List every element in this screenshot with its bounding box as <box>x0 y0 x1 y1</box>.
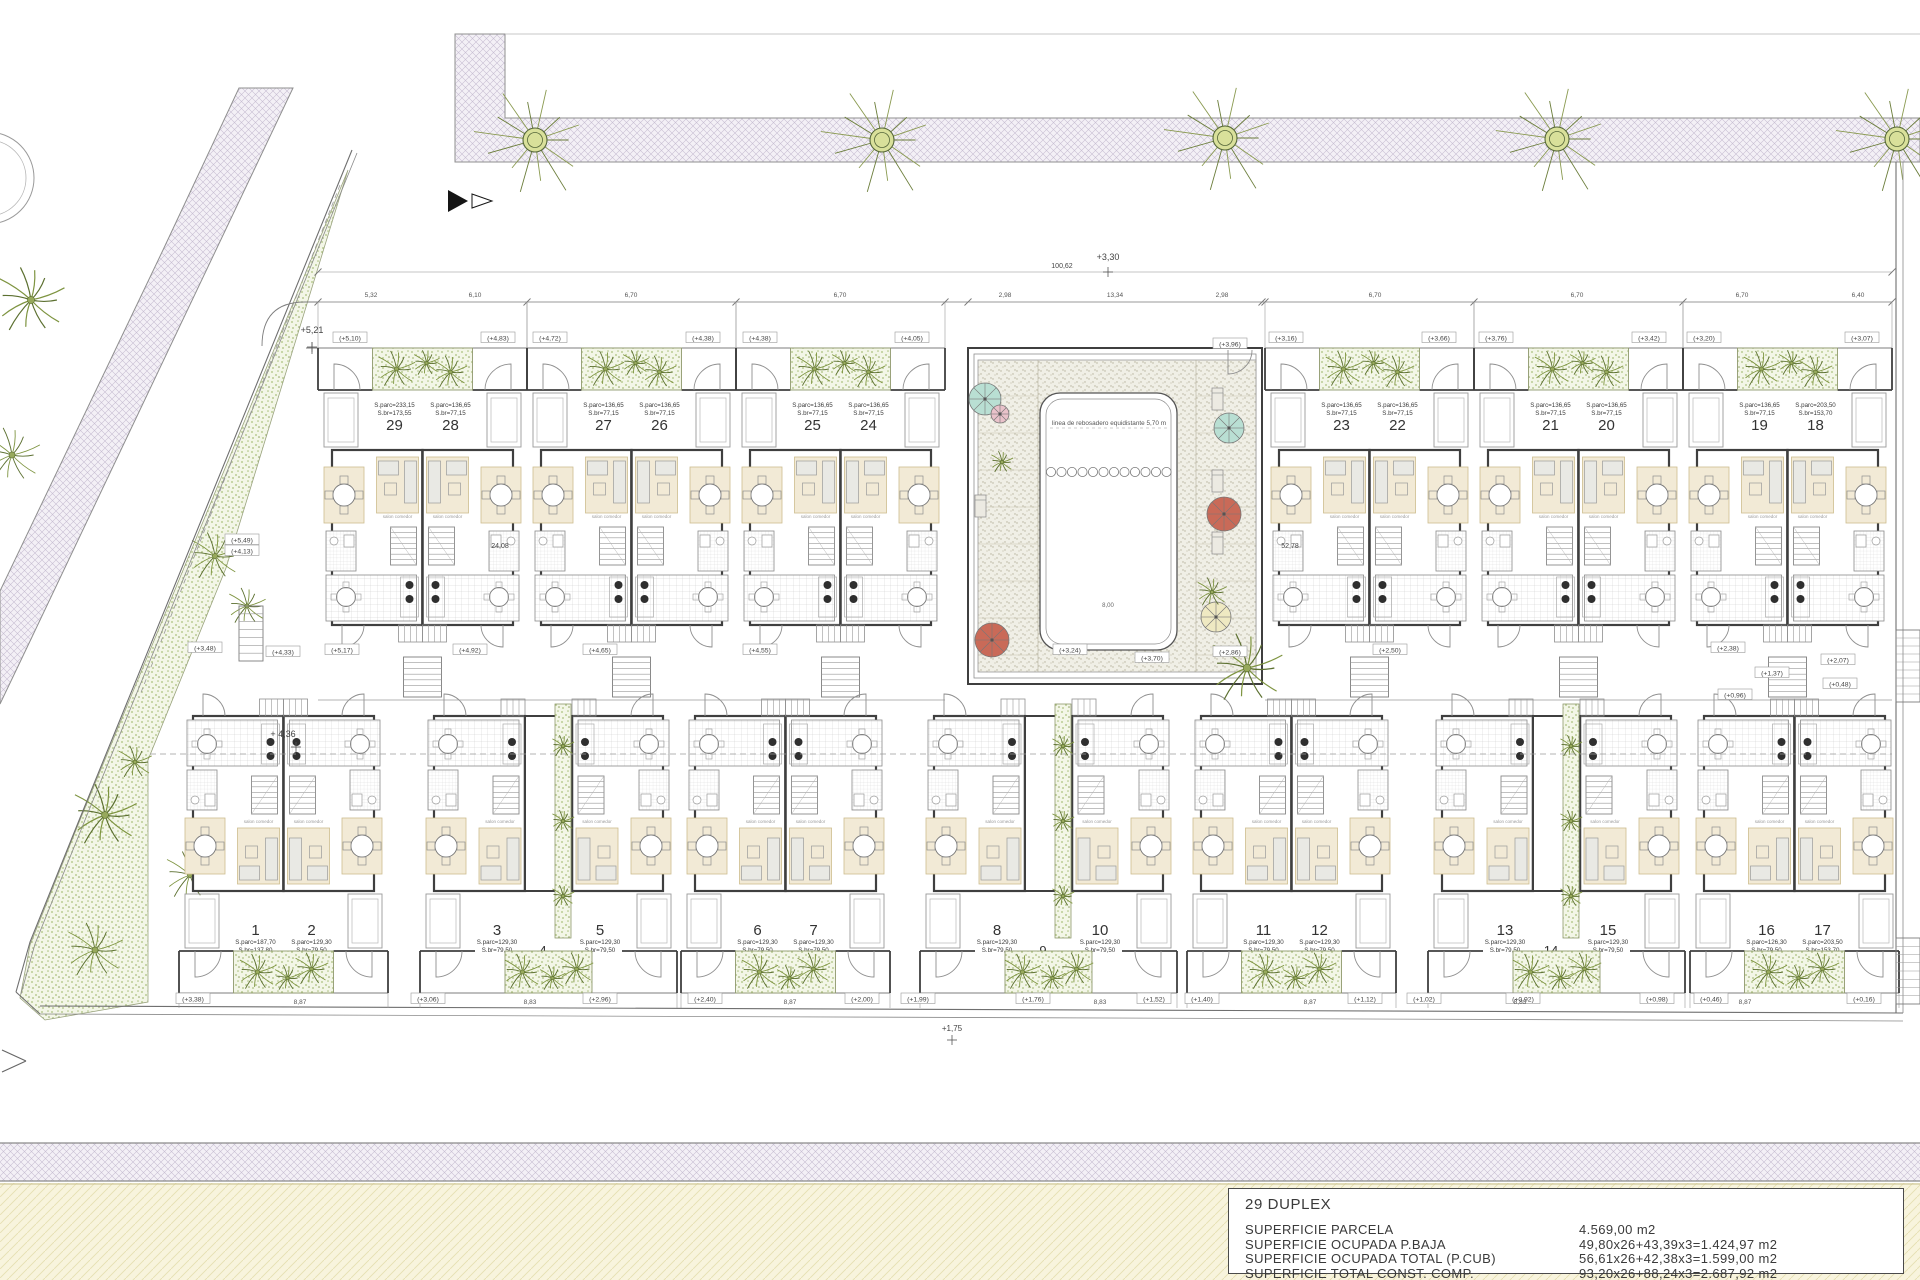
svg-text:(+3,66): (+3,66) <box>1428 336 1450 343</box>
svg-text:salon comedor: salon comedor <box>1252 819 1282 824</box>
svg-text:(+4,13): (+4,13) <box>231 549 253 556</box>
svg-text:(+4,72): (+4,72) <box>539 336 561 343</box>
svg-text:(+0,96): (+0,96) <box>1724 693 1746 700</box>
svg-text:S.br=77,15: S.br=77,15 <box>1591 410 1622 417</box>
svg-text:S.parc=129,30: S.parc=129,30 <box>477 939 518 946</box>
svg-text:S.parc=203,50: S.parc=203,50 <box>1795 402 1836 409</box>
svg-text:16: 16 <box>1758 922 1775 939</box>
svg-text:(+3,96): (+3,96) <box>1219 342 1241 349</box>
svg-text:salon comedor: salon comedor <box>1302 819 1332 824</box>
svg-text:(+1,52): (+1,52) <box>1143 997 1165 1004</box>
porch-planter <box>1513 951 1601 993</box>
svg-text:8,87: 8,87 <box>784 999 797 1006</box>
svg-text:S.br=77,15: S.br=77,15 <box>1744 410 1775 417</box>
svg-text:8,83: 8,83 <box>1514 999 1527 1006</box>
svg-text:8,87: 8,87 <box>294 999 307 1006</box>
parasol <box>1214 413 1244 443</box>
svg-text:(+2,86): (+2,86) <box>1219 650 1241 657</box>
svg-text:+ 4,36: + 4,36 <box>270 729 295 739</box>
svg-text:(+3,38): (+3,38) <box>182 997 204 1004</box>
porch-planter <box>1738 348 1838 390</box>
svg-text:S.parc=129,30: S.parc=129,30 <box>1588 939 1629 946</box>
svg-text:15: 15 <box>1600 922 1617 939</box>
svg-text:2,98: 2,98 <box>999 292 1012 299</box>
svg-text:11: 11 <box>1256 922 1272 939</box>
svg-text:salon comedor: salon comedor <box>1805 819 1835 824</box>
svg-text:salon comedor: salon comedor <box>582 819 612 824</box>
svg-text:S.br=77,15: S.br=77,15 <box>435 410 466 417</box>
svg-text:6,70: 6,70 <box>625 292 638 299</box>
svg-text:S.br=77,15: S.br=77,15 <box>853 410 884 417</box>
svg-text:(+3,70): (+3,70) <box>1141 656 1163 663</box>
svg-text:salon comedor: salon comedor <box>485 819 515 824</box>
parasol <box>975 623 1009 657</box>
svg-text:(+0,46): (+0,46) <box>1700 997 1722 1004</box>
svg-text:S.parc=136,65: S.parc=136,65 <box>1586 402 1627 409</box>
svg-text:(+0,48): (+0,48) <box>1829 682 1851 689</box>
svg-text:24,08: 24,08 <box>491 543 509 550</box>
svg-text:28: 28 <box>442 417 459 434</box>
title-block-row: SUPERFICIE TOTAL CONST. COMP. 93,20x26+8… <box>1245 1267 1887 1280</box>
svg-text:52,78: 52,78 <box>1281 543 1299 550</box>
title-block-row: SUPERFICIE OCUPADA P.BAJA 49,80x26+43,39… <box>1245 1238 1887 1253</box>
svg-text:19: 19 <box>1751 417 1768 434</box>
svg-text:6,70: 6,70 <box>1571 292 1584 299</box>
svg-text:(+4,05): (+4,05) <box>901 336 923 343</box>
svg-text:S.parc=129,30: S.parc=129,30 <box>1080 939 1121 946</box>
svg-text:(+1,12): (+1,12) <box>1354 997 1376 1004</box>
svg-text:100,62: 100,62 <box>1051 263 1073 270</box>
porch-planter <box>1242 951 1342 993</box>
svg-text:24: 24 <box>860 417 877 434</box>
svg-text:(+1,40): (+1,40) <box>1191 997 1213 1004</box>
svg-text:S.br=153,70: S.br=153,70 <box>1799 410 1833 417</box>
svg-text:(+2,38): (+2,38) <box>1717 646 1739 653</box>
svg-text:salon comedor: salon comedor <box>592 514 622 519</box>
svg-text:salon comedor: salon comedor <box>1590 819 1620 824</box>
svg-text:salon comedor: salon comedor <box>1330 514 1360 519</box>
porch-planter <box>373 348 473 390</box>
svg-text:salon comedor: salon comedor <box>1380 514 1410 519</box>
svg-text:S.parc=136,65: S.parc=136,65 <box>1321 402 1362 409</box>
svg-text:23: 23 <box>1333 417 1350 434</box>
sun-lounger <box>1212 388 1223 410</box>
sun-lounger <box>1212 532 1223 554</box>
background <box>0 0 1920 1280</box>
svg-text:S.parc=129,30: S.parc=129,30 <box>1243 939 1284 946</box>
svg-text:S.parc=129,30: S.parc=129,30 <box>1485 939 1526 946</box>
svg-text:12: 12 <box>1311 922 1328 939</box>
svg-text:8: 8 <box>993 922 1001 939</box>
svg-text:1: 1 <box>251 922 259 939</box>
title-block-title: 29 DUPLEX <box>1245 1196 1887 1213</box>
svg-text:S.parc=233,15: S.parc=233,15 <box>374 402 415 409</box>
svg-text:salon comedor: salon comedor <box>294 819 324 824</box>
svg-text:S.parc=136,65: S.parc=136,65 <box>792 402 833 409</box>
svg-text:salon comedor: salon comedor <box>801 514 831 519</box>
svg-text:salon comedor: salon comedor <box>1493 819 1523 824</box>
svg-text:(+1,76): (+1,76) <box>1022 997 1044 1004</box>
svg-text:(+0,16): (+0,16) <box>1853 997 1875 1004</box>
svg-text:S.parc=129,30: S.parc=129,30 <box>1299 939 1340 946</box>
svg-text:26: 26 <box>651 417 668 434</box>
svg-text:S.br=77,15: S.br=77,15 <box>1382 410 1413 417</box>
svg-text:S.parc=136,65: S.parc=136,65 <box>848 402 889 409</box>
title-block-row: SUPERFICIE OCUPADA TOTAL (P.CUB) 56,61x2… <box>1245 1252 1887 1267</box>
svg-text:(+3,48): (+3,48) <box>194 646 216 653</box>
svg-text:salon comedor: salon comedor <box>985 819 1015 824</box>
svg-text:5,32: 5,32 <box>365 292 378 299</box>
svg-text:S.parc=136,65: S.parc=136,65 <box>1739 402 1780 409</box>
svg-text:(+0,98): (+0,98) <box>1646 997 1668 1004</box>
svg-text:(+3,16): (+3,16) <box>1275 336 1297 343</box>
svg-text:S.parc=136,65: S.parc=136,65 <box>430 402 471 409</box>
svg-text:2: 2 <box>307 922 315 939</box>
porch-planter <box>1745 951 1845 993</box>
svg-text:(+3,07): (+3,07) <box>1851 336 1873 343</box>
title-block-row: SUPERFICIE PARCELA 4.569,00 m2 <box>1245 1223 1887 1238</box>
svg-text:2,98: 2,98 <box>1216 292 1229 299</box>
svg-text:salon comedor: salon comedor <box>1798 514 1828 519</box>
svg-text:(+1,99): (+1,99) <box>907 997 929 1004</box>
svg-text:21: 21 <box>1542 417 1559 434</box>
svg-text:8,87: 8,87 <box>1304 999 1317 1006</box>
svg-text:salon comedor: salon comedor <box>1589 514 1619 519</box>
svg-text:(+2,40): (+2,40) <box>694 997 716 1004</box>
site-plan-drawing: salon comedorS.parc=233,15S.br=173,5529s… <box>0 0 1920 1280</box>
svg-text:salon comedor: salon comedor <box>1539 514 1569 519</box>
svg-text:S.parc=136,65: S.parc=136,65 <box>639 402 680 409</box>
svg-text:25: 25 <box>804 417 821 434</box>
svg-text:(+4,33): (+4,33) <box>272 650 294 657</box>
site-plan-page: salon comedorS.parc=233,15S.br=173,5529s… <box>0 0 1920 1280</box>
svg-text:+1,75: +1,75 <box>942 1024 963 1033</box>
svg-text:6: 6 <box>753 922 761 939</box>
svg-text:salon comedor: salon comedor <box>746 819 776 824</box>
svg-text:+5,21: +5,21 <box>301 325 324 335</box>
porch-planter <box>1005 951 1093 993</box>
svg-text:salon comedor: salon comedor <box>244 819 274 824</box>
title-block: 29 DUPLEX SUPERFICIE PARCELA 4.569,00 m2… <box>1228 1188 1904 1274</box>
parasol <box>1207 497 1241 531</box>
svg-text:salon comedor: salon comedor <box>383 514 413 519</box>
svg-text:22: 22 <box>1389 417 1406 434</box>
svg-text:(+4,65): (+4,65) <box>589 648 611 655</box>
svg-text:S.parc=187,70: S.parc=187,70 <box>235 939 276 946</box>
svg-text:salon comedor: salon comedor <box>433 514 463 519</box>
svg-text:salon comedor: salon comedor <box>642 514 672 519</box>
svg-text:S.parc=129,30: S.parc=129,30 <box>977 939 1018 946</box>
svg-text:(+5,17): (+5,17) <box>331 648 353 655</box>
svg-text:13,34: 13,34 <box>1107 292 1124 299</box>
svg-text:S.parc=136,65: S.parc=136,65 <box>1530 402 1571 409</box>
svg-text:(+3,20): (+3,20) <box>1693 336 1715 343</box>
svg-text:linea de rebosadero equidistan: linea de rebosadero equidistante 5,70 m <box>1052 420 1166 427</box>
svg-text:S.parc=136,65: S.parc=136,65 <box>1377 402 1418 409</box>
svg-text:(+4,55): (+4,55) <box>749 648 771 655</box>
svg-text:salon comedor: salon comedor <box>1748 514 1778 519</box>
svg-text:S.br=173,55: S.br=173,55 <box>378 410 412 417</box>
svg-text:S.parc=129,30: S.parc=129,30 <box>291 939 332 946</box>
svg-text:(+4,83): (+4,83) <box>487 336 509 343</box>
svg-text:+3,30: +3,30 <box>1097 252 1120 262</box>
svg-text:5: 5 <box>596 922 604 939</box>
porch-planter <box>1320 348 1420 390</box>
svg-text:7: 7 <box>809 922 817 939</box>
svg-text:salon comedor: salon comedor <box>796 819 826 824</box>
svg-text:S.br=77,15: S.br=77,15 <box>797 410 828 417</box>
svg-text:(+4,92): (+4,92) <box>459 648 481 655</box>
svg-text:8,83: 8,83 <box>1094 999 1107 1006</box>
svg-text:(+1,37): (+1,37) <box>1761 671 1783 678</box>
svg-text:8,00: 8,00 <box>1102 603 1114 609</box>
svg-text:(+2,50): (+2,50) <box>1379 648 1401 655</box>
porch-planter <box>1529 348 1629 390</box>
svg-text:(+3,06): (+3,06) <box>417 997 439 1004</box>
porch-planter <box>505 951 593 993</box>
svg-text:S.parc=136,65: S.parc=136,65 <box>583 402 624 409</box>
svg-text:S.br=77,15: S.br=77,15 <box>1326 410 1357 417</box>
svg-text:S.br=77,15: S.br=77,15 <box>588 410 619 417</box>
svg-text:(+1,02): (+1,02) <box>1413 997 1435 1004</box>
parasol <box>1201 602 1231 632</box>
svg-text:(+5,49): (+5,49) <box>231 538 253 545</box>
svg-text:20: 20 <box>1598 417 1615 434</box>
svg-text:(+3,42): (+3,42) <box>1638 336 1660 343</box>
svg-text:27: 27 <box>595 417 612 434</box>
svg-text:(+3,24): (+3,24) <box>1059 648 1081 655</box>
svg-text:8,87: 8,87 <box>1739 999 1752 1006</box>
svg-text:10: 10 <box>1092 922 1109 939</box>
svg-text:(+3,76): (+3,76) <box>1485 336 1507 343</box>
svg-text:S.parc=129,30: S.parc=129,30 <box>580 939 621 946</box>
svg-text:6,70: 6,70 <box>1736 292 1749 299</box>
porch-planter <box>736 951 836 993</box>
svg-text:(+2,07): (+2,07) <box>1827 658 1849 665</box>
svg-text:S.br=77,15: S.br=77,15 <box>1535 410 1566 417</box>
svg-text:6,70: 6,70 <box>834 292 847 299</box>
svg-text:S.br=77,15: S.br=77,15 <box>644 410 675 417</box>
svg-text:29: 29 <box>386 417 403 434</box>
svg-text:S.parc=126,30: S.parc=126,30 <box>1746 939 1787 946</box>
svg-text:salon comedor: salon comedor <box>1082 819 1112 824</box>
porch-planter <box>234 951 334 993</box>
svg-text:S.parc=129,30: S.parc=129,30 <box>793 939 834 946</box>
svg-text:17: 17 <box>1814 922 1831 939</box>
porch-planter <box>791 348 891 390</box>
svg-text:6,10: 6,10 <box>469 292 482 299</box>
svg-text:8,83: 8,83 <box>524 999 537 1006</box>
svg-text:6,70: 6,70 <box>1369 292 1382 299</box>
porch-planter <box>582 348 682 390</box>
svg-text:(+4,38): (+4,38) <box>749 336 771 343</box>
svg-text:S.parc=203,50: S.parc=203,50 <box>1802 939 1843 946</box>
svg-text:(+2,00): (+2,00) <box>851 997 873 1004</box>
svg-text:13: 13 <box>1497 922 1514 939</box>
svg-text:6,40: 6,40 <box>1852 292 1865 299</box>
svg-text:salon comedor: salon comedor <box>1755 819 1785 824</box>
svg-text:S.parc=129,30: S.parc=129,30 <box>737 939 778 946</box>
svg-text:salon comedor: salon comedor <box>851 514 881 519</box>
svg-text:3: 3 <box>493 922 501 939</box>
sun-lounger <box>1212 470 1223 492</box>
sun-lounger <box>975 495 986 517</box>
svg-text:(+5,10): (+5,10) <box>339 336 361 343</box>
svg-text:(+4,38): (+4,38) <box>692 336 714 343</box>
svg-text:(+2,96): (+2,96) <box>589 997 611 1004</box>
svg-text:18: 18 <box>1807 417 1824 434</box>
parasol <box>991 405 1009 423</box>
